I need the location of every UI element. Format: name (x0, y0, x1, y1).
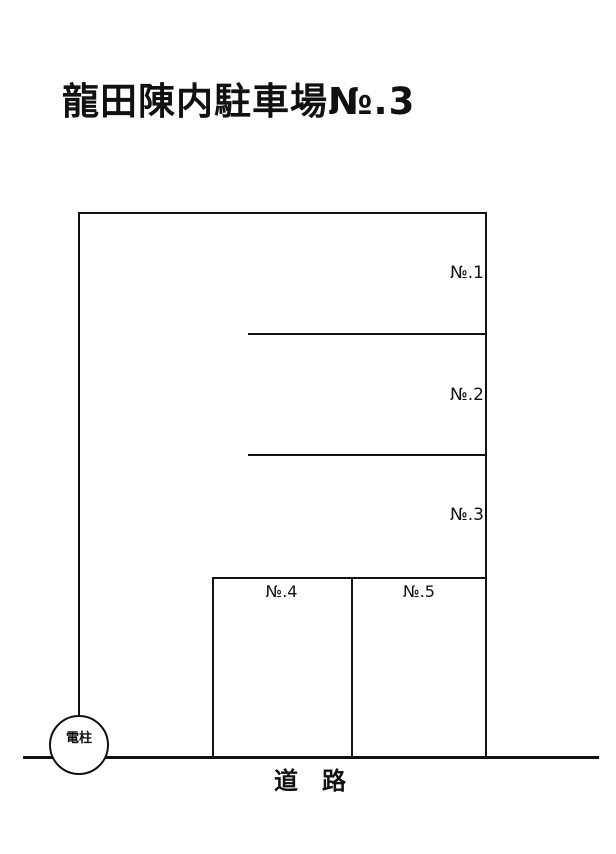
lower-row-middle-divider (351, 577, 353, 759)
parking-space-label-no3: №.3 (450, 506, 484, 525)
space-divider-line-1 (248, 333, 487, 335)
lower-row-top-line (212, 577, 487, 579)
utility-pole-label: 電柱 (49, 727, 109, 746)
parking-space-label-no5: №.5 (351, 582, 487, 601)
parking-lot-diagram-page: 龍田陳内駐車場№.3 №.1 №.2 №.3 №.4 №.5 電柱 道 路 (0, 0, 616, 854)
road-edge-line (23, 756, 599, 759)
road-label: 道 路 (240, 761, 380, 796)
boundary-right-line (485, 212, 487, 759)
space-divider-line-2 (248, 454, 487, 456)
lower-row-left-line (212, 577, 214, 759)
page-title: 龍田陳内駐車場№.3 (62, 71, 415, 125)
boundary-left-line (78, 212, 80, 716)
parking-space-label-no4: №.4 (212, 582, 351, 601)
parking-space-label-no2: №.2 (450, 386, 484, 405)
parking-space-label-no1: №.1 (450, 264, 484, 283)
boundary-top-line (78, 212, 487, 214)
